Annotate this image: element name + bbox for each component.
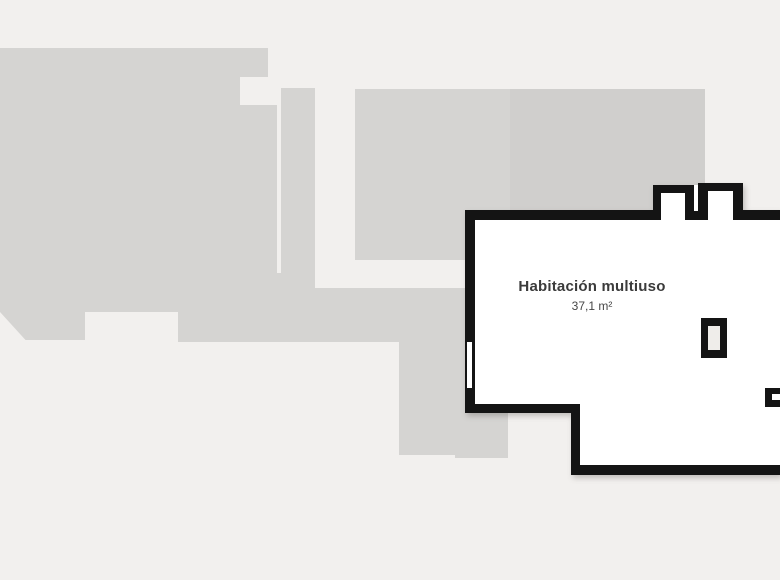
room-interior-extension[interactable]: [580, 220, 780, 465]
window-right: [772, 394, 780, 400]
wall-niche-left-opening: [661, 193, 685, 220]
column-core: [708, 326, 720, 350]
room-habitacion-multiuso: Habitación multiuso 37,1 m²: [0, 0, 780, 580]
wall-niche-gap: [694, 185, 698, 211]
window-left: [467, 342, 472, 388]
wall-niche-right-opening: [708, 191, 733, 220]
floor-plan-canvas: Habitación multiuso 37,1 m²: [0, 0, 780, 580]
